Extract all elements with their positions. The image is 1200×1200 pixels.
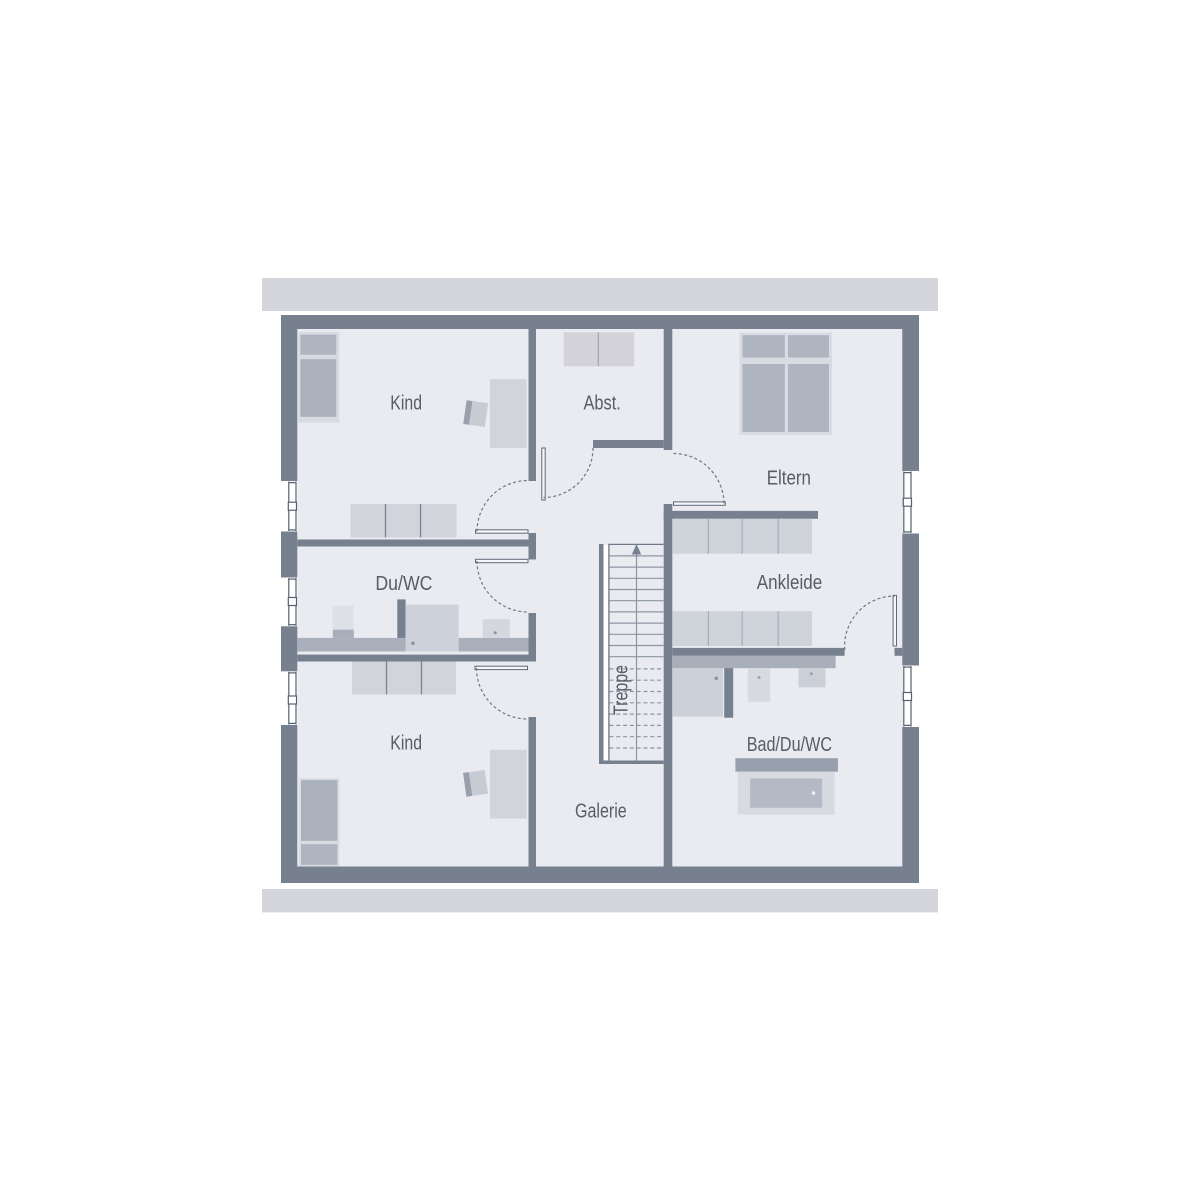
svg-text:Bad/Du/WC: Bad/Du/WC bbox=[747, 734, 832, 756]
svg-text:Ankleide: Ankleide bbox=[757, 572, 822, 594]
svg-text:Eltern: Eltern bbox=[767, 468, 811, 490]
svg-text:Du/WC: Du/WC bbox=[375, 573, 432, 595]
svg-text:Kind: Kind bbox=[390, 393, 422, 415]
svg-text:Galerie: Galerie bbox=[575, 801, 627, 823]
svg-text:Abst.: Abst. bbox=[584, 393, 621, 415]
svg-text:Treppe: Treppe bbox=[611, 665, 633, 715]
svg-text:Kind: Kind bbox=[390, 733, 422, 755]
